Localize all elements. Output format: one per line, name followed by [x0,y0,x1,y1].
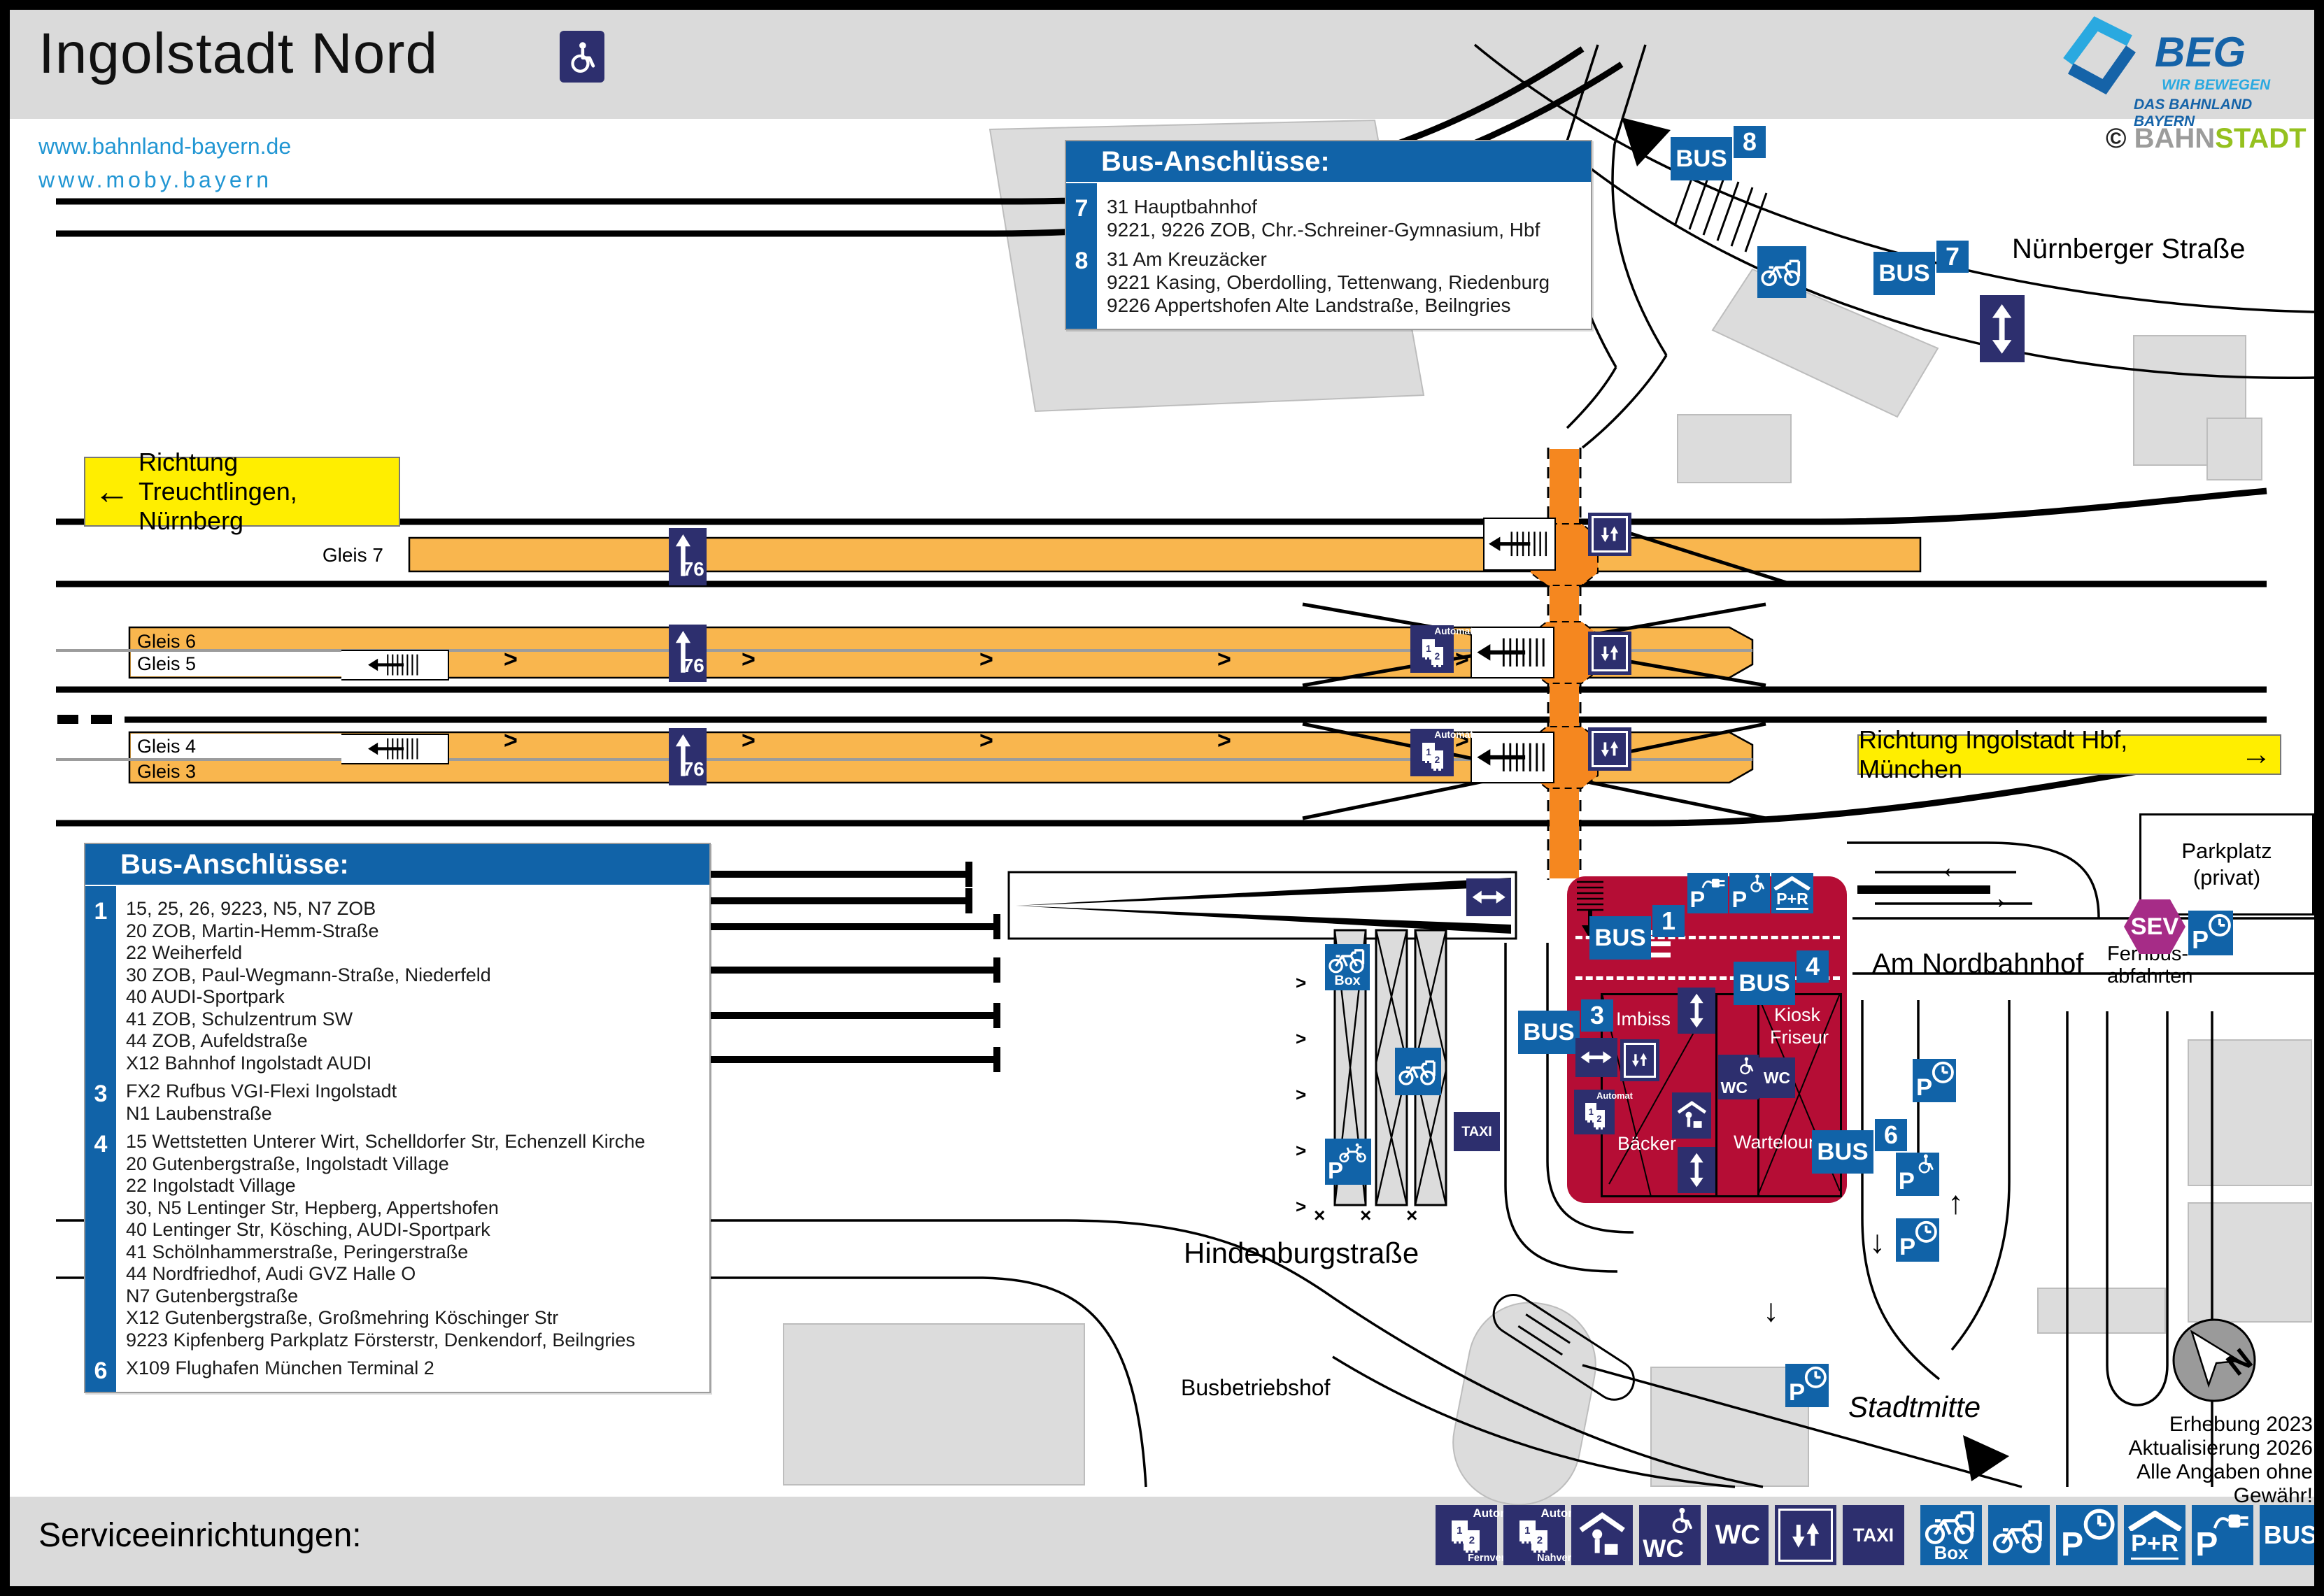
label-baecker: Bäcker [1617,1133,1676,1155]
bus-stop-number-plate: 8 [1734,126,1766,158]
stairs-icon [341,734,449,764]
platform-chevron-icon: > [504,727,518,755]
elevator-sign [1588,632,1631,675]
bus-stop-number: 1 [85,898,116,925]
label-gleis-6: Gleis 6 [137,631,196,653]
ticket-machine-legend-icon: Automat12Fernverkehr [1436,1505,1497,1565]
bus-connection-line: 20 ZOB, Martin-Hemm-Straße [126,920,705,943]
bike-parking-sign [1988,1505,2050,1565]
note-gewaehr: Alle Angaben ohne Gewähr! [2078,1460,2313,1508]
bus-stop-sign: BUS [1518,1011,1580,1054]
parking-clock-sign: P [1785,1364,1829,1407]
label-gleis-7: Gleis 7 [299,544,383,567]
direction-west-line2: Nürnberg [139,506,243,535]
road-direction-west-icon: ← [1938,848,1970,885]
bus-connection-group: 6X109 Flughafen München Terminal 2 [85,1358,705,1380]
direction-east-text: Richtung Ingolstadt Hbf, München [1859,725,2232,784]
parking-clock-sign: P [2056,1505,2118,1565]
bus-connection-line: 41 Schölnhammerstraße, Peringerstraße [126,1241,705,1264]
bus-connection-line: 44 Nordfriedhof, Audi GVZ Halle O [126,1263,705,1285]
label-gleis-3: Gleis 3 [137,761,196,783]
bus-stop-number: 8 [1066,248,1097,275]
bus-stop-sign: BUS [1734,962,1795,1005]
ticket-machine-sign: Automat12 [1574,1090,1615,1134]
parkplatz-line2: (privat) [2193,864,2260,891]
east-arrow-icon: → [2241,739,2272,770]
ticket-machine-sign: Automat12 [1410,729,1454,776]
wc-accessible-sign: WC [1639,1505,1701,1565]
bus-connection-line: 20 Gutenbergstraße, Ingolstadt Village [126,1153,705,1176]
note-erhebung: Erhebung 2023 [2078,1413,2313,1437]
bus-connection-line: 40 AUDI-Sportpark [126,986,705,1009]
bus-connection-line: 41 ZOB, Schulzentrum SW [126,1009,705,1031]
bus-box-title: Bus-Anschlüsse: [1066,141,1591,183]
bike-parking-sign [1757,246,1806,298]
bike-box-sign: Box [1325,944,1370,990]
bus-box-title: Bus-Anschlüsse: [85,844,709,886]
bus-connection-line: X109 Flughafen München Terminal 2 [126,1358,705,1380]
platform-chevron-icon: > [742,727,756,755]
label-imbiss: Imbiss [1616,1009,1671,1030]
bus-connection-line: 9221 Kasing, Oberdolling, Tettenwang, Ri… [1107,271,1587,294]
bus-connection-group: 115, 25, 26, 9223, N5, N7 ZOB20 ZOB, Mar… [85,898,705,1074]
platform-height-sign: 76 [669,528,707,585]
platform-chevron-icon: > [504,646,518,674]
label-gleis-5: Gleis 5 [137,653,196,675]
path-cross-mark: × [1360,1204,1371,1227]
bus-connection-line: X12 Gutenbergstraße, Großmehring Köschin… [126,1307,705,1330]
bus-connection-line: 31 Hauptbahnhof [1107,195,1587,218]
updown-passage-sign [1980,295,2025,362]
wc-sign: WC [1707,1505,1769,1565]
updown-passage-sign [1678,1147,1715,1193]
elevator-sign [1588,727,1631,771]
bus-connection-line: N1 Laubenstraße [126,1103,705,1125]
bus-stop-number-plate: 6 [1875,1119,1907,1151]
bus-stop-sign: BUS [1589,916,1651,960]
platform-height-sign: 76 [669,625,707,682]
bus-connection-group: 3FX2 Rufbus VGI-Flexi IngolstadtN1 Laube… [85,1081,705,1125]
waiting-lounge-sign [1571,1505,1633,1565]
bus-connection-line: 15 Wettstetten Unterer Wirt, Schelldorfe… [126,1131,705,1153]
direction-sign-east: Richtung Ingolstadt Hbf, München → [1857,734,2281,775]
bus-connection-line: 44 ZOB, Aufeldstraße [126,1030,705,1053]
bus-connection-line: 22 Ingolstadt Village [126,1175,705,1197]
compass-north-icon: N [2174,1313,2259,1401]
bus-connection-line: N7 Gutenbergstraße [126,1285,705,1308]
west-arrow-icon: ← [94,473,130,510]
direction-sign-west: ← Richtung Treuchtlingen, Nürnberg [84,457,400,527]
parking-accessible-sign: P [1729,873,1770,913]
bus-connection-group: 415 Wettstetten Unterer Wirt, Schelldorf… [85,1131,705,1351]
bus-connection-line: 30 ZOB, Paul-Wegmann-Straße, Niederfeld [126,964,705,987]
label-gleis-4: Gleis 4 [137,736,196,757]
bus-stop-number-plate: 1 [1652,905,1685,937]
road-direction-south-icon: ↓ [1763,1291,1779,1329]
road-direction-north-icon: ↑ [1948,1183,1964,1221]
parking-clock-sign: P [1913,1059,1956,1102]
bus-stop-number: 4 [85,1131,116,1158]
bus-stop-number-plate: 4 [1797,950,1829,983]
parkplatz-line1: Parkplatz [2181,838,2272,864]
label-friseur: Friseur [1770,1027,1829,1048]
bus-connection-line: FX2 Rufbus VGI-Flexi Ingolstadt [126,1081,705,1103]
path-chevron-icon: > [1296,1028,1306,1050]
bus-stop-sign: BUS [1873,252,1935,295]
platform-chevron-icon: > [1455,646,1469,674]
elevator-sign [1775,1505,1836,1565]
wc-accessible-sign: WC [1718,1055,1759,1099]
taxi-sign: TAXI [1843,1505,1904,1565]
bus-connection-line: 40 Lentinger Str, Kösching, AUDI-Sportpa… [126,1219,705,1241]
parking-charging-sign: P [1687,873,1728,913]
leftright-passage-sign [1466,878,1511,916]
label-kiosk: Kiosk [1774,1004,1820,1026]
parking-charging-sign: P [2192,1505,2253,1565]
stairs-icon [1471,627,1554,678]
parking-accessible-sign: P [1896,1153,1939,1196]
bus-stop-number: 6 [85,1358,116,1385]
bike-parking-sign [1395,1048,1441,1095]
road-direction-east-icon: → [1978,878,2011,916]
bus-connections-box-top: Bus-Anschlüsse: 731 Hauptbahnhof9221, 92… [1065,140,1592,330]
bus-connection-line: 22 Weiherfeld [126,942,705,964]
note-aktualisierung: Aktualisierung 2026 [2078,1437,2313,1460]
bus-connection-line: 9226 Appertshofen Alte Landstraße, Beiln… [1107,294,1587,317]
bus-stop-number: 7 [1066,195,1097,222]
label-hindenburgstrasse: Hindenburgstraße [1184,1237,1419,1270]
direction-west-line1: Richtung Treuchtlingen, [139,448,297,506]
ticket-machine-legend-icon: Automat12Nahverkehr [1503,1505,1565,1565]
stairs-icon [1471,732,1554,783]
stairs-icon [1483,518,1556,571]
updown-passage-sign [1678,988,1715,1034]
park-and-ride-sign: P+R [2124,1505,2185,1565]
label-am-nordbahnhof: Am Nordbahnhof [1872,948,2083,980]
platform-chevron-icon: > [742,646,756,674]
parking-clock-sign: P [2188,911,2233,955]
bus-stop-number-plate: 3 [1581,999,1613,1032]
bus-connection-group: 731 Hauptbahnhof9221, 9226 ZOB, Chr.-Sch… [1066,195,1587,241]
platform-chevron-icon: > [1217,727,1231,755]
elevator-sign [1588,513,1631,556]
bus-connections-box-left: Bus-Anschlüsse: 115, 25, 26, 9223, N5, N… [84,843,711,1393]
road-direction-south-icon: ↓ [1869,1223,1885,1260]
bus-connection-group: 831 Am Kreuzäcker9221 Kasing, Oberdollin… [1066,248,1587,317]
elevator-sign [1620,1039,1659,1081]
map-notes: Erhebung 2023 Aktualisierung 2026 Alle A… [2078,1413,2313,1508]
platform-chevron-icon: > [979,646,993,674]
bus-connection-line: X12 Bahnhof Ingolstadt AUDI [126,1053,705,1075]
bus-connection-line: 9223 Kipfenberg Parkplatz Försterstr, De… [126,1330,705,1352]
bus-stop-number: 3 [85,1081,116,1108]
leftright-passage-sign [1575,1038,1617,1077]
ticket-machine-sign: Automat12 [1410,625,1454,673]
bus-legend-icon: BUS [2260,1505,2321,1565]
path-cross-mark: × [1314,1204,1325,1227]
bus-stop-sign: BUS [1671,137,1732,180]
park-and-ride-sign: P+R [1771,873,1813,913]
bus-connection-line: 31 Am Kreuzäcker [1107,248,1587,271]
label-busbetriebshof: Busbetriebshof [1181,1375,1330,1401]
path-chevron-icon: > [1296,1084,1306,1106]
wc-sign: WC [1759,1057,1795,1098]
label-nuernberger-strasse: Nürnberger Straße [2012,234,2245,265]
path-cross-mark: × [1406,1204,1417,1227]
waiting-lounge-sign [1672,1092,1711,1139]
bus-connection-line: 30, N5 Lentinger Str, Hepberg, Appertsho… [126,1197,705,1220]
label-stadtmitte: Stadtmitte [1848,1390,1981,1424]
bus-stop-sign: BUS [1812,1130,1873,1174]
bus-connection-line: 9221, 9226 ZOB, Chr.-Schreiner-Gymnasium… [1107,218,1587,241]
path-chevron-icon: > [1296,1196,1306,1218]
taxi-sign: TAXI [1454,1112,1500,1151]
path-chevron-icon: > [1296,972,1306,994]
bus-connection-line: 15, 25, 26, 9223, N5, N7 ZOB [126,898,705,920]
platform-height-sign: 76 [669,728,707,785]
bike-box-sign: Box [1920,1505,1982,1565]
bus-stop-number-plate: 7 [1936,241,1969,273]
stairs-icon [341,650,449,681]
parking-motorcycle-sign: P [1325,1139,1371,1185]
legend-title: Serviceeinrichtungen: [38,1516,362,1555]
platform-chevron-icon: > [1217,646,1231,674]
path-chevron-icon: > [1296,1140,1306,1162]
platform-chevron-icon: > [979,727,993,755]
parking-clock-sign: P [1896,1218,1939,1262]
